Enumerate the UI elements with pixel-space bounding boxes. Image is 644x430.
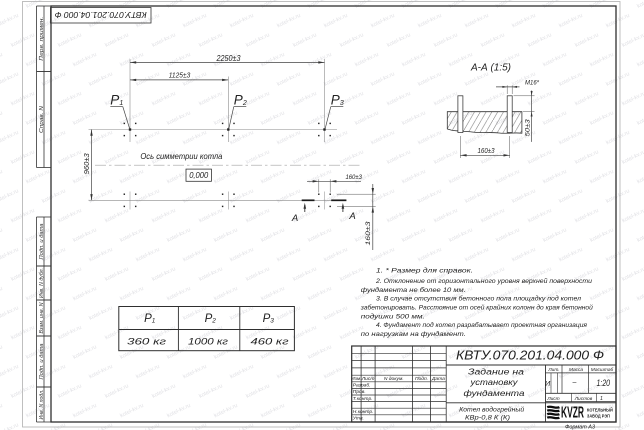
svg-text:1125±3: 1125±3 bbox=[169, 71, 191, 80]
svg-text:1:20: 1:20 bbox=[597, 378, 611, 389]
svg-text:Формат А3: Формат А3 bbox=[565, 425, 595, 430]
svg-text:А-А (1:5): А-А (1:5) bbox=[470, 62, 511, 74]
svg-text:Перв. примен.: Перв. примен. bbox=[39, 17, 45, 61]
svg-text:КОТЕЛЬНЫЙ: КОТЕЛЬНЫЙ bbox=[587, 406, 613, 413]
svg-text:Масштаб: Масштаб bbox=[591, 367, 614, 373]
svg-text:Инв. N дубл.: Инв. N дубл. bbox=[39, 268, 45, 298]
svg-text:1: 1 bbox=[600, 396, 603, 402]
svg-text:Ось симметрии котла: Ось симметрии котла bbox=[140, 152, 223, 161]
svg-text:Н.контр.: Н.контр. bbox=[353, 409, 374, 415]
svg-text:160±3: 160±3 bbox=[478, 146, 495, 155]
svg-text:0,000: 0,000 bbox=[189, 171, 209, 180]
svg-text:2250±3: 2250±3 bbox=[216, 54, 242, 63]
svg-text:3. В случае отсутствия бето: 3. В случае отсутствия бетонного пола пл… bbox=[376, 295, 581, 303]
svg-text:Лист: Лист bbox=[546, 396, 559, 402]
svg-text:–: – bbox=[572, 379, 577, 386]
svg-text:А: А bbox=[348, 211, 355, 222]
svg-text:Подп. и дата: Подп. и дата bbox=[39, 344, 45, 380]
svg-text:Т.контр.: Т.контр. bbox=[353, 396, 373, 402]
svg-text:фундамента: фундамента bbox=[464, 388, 525, 398]
svg-text:360 кг: 360 кг bbox=[127, 336, 167, 347]
svg-text:KVZR: KVZR bbox=[561, 405, 584, 422]
svg-text:М16*: М16* bbox=[525, 79, 540, 86]
svg-text:960±3: 960±3 bbox=[84, 153, 91, 174]
svg-text:КВр-0,8 К (К): КВр-0,8 К (К) bbox=[465, 414, 510, 421]
svg-text:Листов: Листов bbox=[574, 396, 593, 402]
svg-text:КВТУ.070.201.04.000 Ф: КВТУ.070.201.04.000 Ф bbox=[456, 348, 604, 362]
svg-text:Лит.: Лит. bbox=[547, 367, 559, 373]
svg-text:N докум.: N докум. bbox=[384, 376, 404, 382]
svg-text:1000 кг: 1000 кг bbox=[188, 336, 228, 347]
svg-text:ЗАВОД РЭП: ЗАВОД РЭП bbox=[587, 414, 610, 419]
svg-text:Масса: Масса bbox=[569, 367, 584, 373]
svg-text:1. * Размер для справок.: 1. * Размер для справок. bbox=[376, 266, 473, 274]
svg-text:Взам. инв. N: Взам. инв. N bbox=[39, 302, 45, 334]
svg-text:160±3: 160±3 bbox=[345, 174, 362, 181]
svg-text:50±3: 50±3 bbox=[524, 119, 531, 136]
svg-text:2. Отклонение от горизонталь: 2. Отклонение от горизонтального уровня … bbox=[375, 277, 593, 285]
svg-text:по нагрузкам на фундамент.: по нагрузкам на фундамент. bbox=[361, 330, 466, 338]
svg-text:Дата: Дата bbox=[431, 376, 445, 382]
svg-text:Пров.: Пров. bbox=[353, 389, 366, 395]
svg-text:460 кг: 460 кг bbox=[251, 336, 290, 347]
svg-text:Изм.: Изм. bbox=[351, 376, 361, 382]
svg-text:Задание на: Задание на bbox=[468, 366, 524, 376]
svg-text:Разраб.: Разраб. bbox=[353, 383, 371, 389]
svg-text:И: И bbox=[545, 379, 551, 388]
svg-text:160±3: 160±3 bbox=[365, 221, 372, 245]
svg-text:Утв.: Утв. bbox=[353, 416, 364, 422]
svg-text:подушки 500 мм.: подушки 500 мм. bbox=[361, 312, 425, 320]
svg-text:установку: установку bbox=[469, 377, 518, 387]
svg-text:Инв. N подл.: Инв. N подл. bbox=[39, 390, 45, 420]
svg-text:Справ. N: Справ. N bbox=[39, 105, 45, 133]
svg-text:4. Фундамент под котел разр: 4. Фундамент под котел разрабатывает про… bbox=[376, 321, 588, 329]
svg-text:А: А bbox=[291, 213, 298, 224]
svg-text:Подп.: Подп. bbox=[415, 376, 428, 382]
svg-text:Котел водогрейный: Котел водогрейный bbox=[459, 406, 525, 413]
svg-text:забетонировать. Расстояние о: забетонировать. Расстояние от осей крайн… bbox=[360, 304, 594, 312]
svg-text:КВТУ.070.201.04.000 Ф: КВТУ.070.201.04.000 Ф bbox=[54, 10, 147, 19]
svg-text:Лист: Лист bbox=[361, 376, 375, 382]
svg-text:Подп. и дата: Подп. и дата bbox=[39, 224, 45, 260]
svg-text:фундамента не более 10 мм.: фундамента не более 10 мм. bbox=[361, 286, 466, 294]
